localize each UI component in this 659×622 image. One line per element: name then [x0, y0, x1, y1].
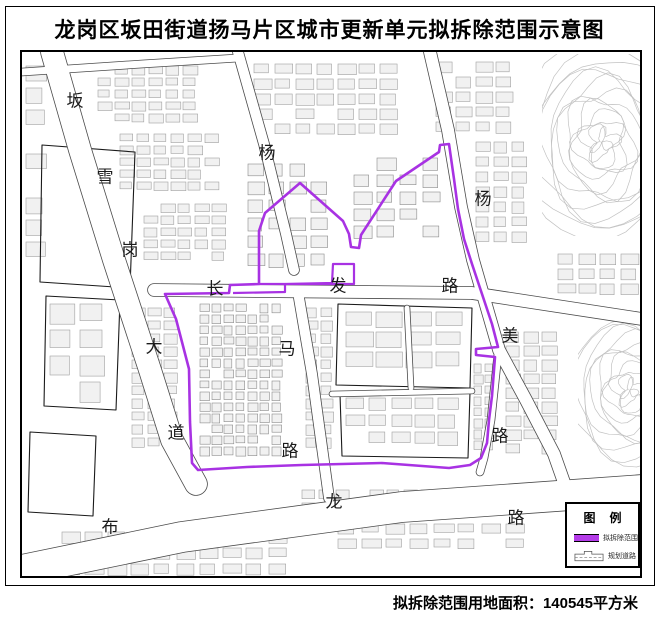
building-footprint	[224, 304, 233, 311]
building-footprint	[269, 548, 286, 557]
building-footprint	[290, 218, 306, 231]
building-footprint	[212, 414, 220, 423]
building-footprint	[512, 232, 526, 243]
building-footprint	[183, 66, 198, 75]
building-footprint	[161, 216, 174, 224]
building-footprint	[542, 346, 557, 355]
building-footprint	[338, 539, 357, 548]
building-footprint	[248, 436, 258, 443]
building-footprint	[177, 564, 194, 575]
building-footprint	[321, 334, 331, 344]
building-footprint	[260, 403, 268, 411]
contour-line	[600, 350, 640, 437]
building-footprint	[224, 392, 232, 400]
building-footprint	[275, 94, 292, 104]
building-footprint	[317, 94, 334, 105]
building-footprint	[200, 370, 210, 378]
building-footprint	[376, 312, 402, 328]
building-footprint	[346, 312, 371, 325]
road-label: 布	[102, 518, 119, 537]
building-block	[26, 66, 47, 257]
building-footprint	[166, 102, 181, 109]
building-footprint	[212, 436, 222, 445]
building-footprint	[248, 164, 264, 176]
building-footprint	[236, 403, 244, 411]
building-footprint	[212, 204, 226, 212]
building-footprint	[558, 254, 572, 264]
building-footprint	[474, 441, 482, 450]
building-footprint	[380, 94, 395, 105]
building-footprint	[171, 182, 186, 191]
building-footprint	[248, 326, 257, 333]
building-block	[346, 312, 462, 368]
building-footprint	[359, 124, 374, 133]
contour-line	[524, 52, 640, 228]
building-footprint	[200, 315, 209, 323]
legend-item-demolition: 拟拆除范围	[574, 533, 638, 543]
building-footprint	[50, 330, 70, 348]
building-footprint	[137, 182, 151, 189]
building-footprint	[248, 254, 265, 266]
building-footprint	[224, 381, 232, 390]
building-footprint	[224, 315, 234, 323]
building-footprint	[296, 109, 314, 119]
building-footprint	[542, 360, 558, 371]
building-footprint	[164, 360, 177, 369]
legend: 图例 拟拆除范围 规划道路	[565, 502, 640, 568]
building-footprint	[269, 564, 286, 574]
building-footprint	[296, 124, 310, 133]
building-footprint	[524, 374, 539, 383]
building-footprint	[223, 548, 241, 557]
building-footprint	[115, 90, 128, 98]
building-footprint	[132, 438, 144, 447]
building-footprint	[496, 122, 511, 133]
building-footprint	[392, 398, 411, 408]
building-footprint	[132, 102, 146, 111]
building-footprint	[120, 182, 131, 189]
building-footprint	[494, 187, 507, 197]
building-footprint	[512, 217, 527, 226]
building-footprint	[200, 348, 209, 356]
building-footprint	[380, 124, 398, 134]
building-footprint	[400, 209, 417, 219]
building-footprint	[338, 79, 354, 89]
building-footprint	[148, 321, 160, 329]
building-footprint	[600, 269, 614, 279]
building-footprint	[178, 240, 190, 249]
building-footprint	[154, 170, 166, 179]
building-footprint	[26, 154, 47, 169]
building-footprint	[80, 356, 105, 376]
building-footprint	[436, 332, 460, 344]
building-footprint	[236, 315, 246, 323]
building-footprint	[248, 359, 258, 366]
building-block	[254, 64, 398, 135]
building-footprint	[178, 252, 190, 260]
building-footprint	[512, 142, 524, 151]
building-footprint	[296, 79, 314, 89]
building-footprint	[26, 220, 42, 236]
building-footprint	[80, 304, 102, 321]
building-footprint	[254, 79, 272, 89]
building-footprint	[248, 392, 257, 400]
parcel-outline	[28, 432, 96, 516]
building-footprint	[212, 447, 222, 455]
building-footprint	[171, 146, 183, 153]
building-footprint	[474, 364, 481, 373]
building-footprint	[205, 158, 219, 166]
road-label: 道	[168, 424, 185, 443]
building-footprint	[400, 192, 416, 205]
building-footprint	[166, 90, 178, 98]
building-footprint	[115, 114, 129, 121]
building-footprint	[236, 304, 246, 311]
building-footprint	[369, 398, 385, 410]
building-footprint	[212, 304, 221, 312]
building-footprint	[248, 315, 256, 323]
building-footprint	[224, 436, 234, 444]
building-footprint	[50, 356, 69, 375]
building-footprint	[600, 254, 616, 265]
contour-line	[574, 325, 641, 463]
building-footprint	[346, 398, 364, 409]
building-footprint	[260, 447, 269, 455]
building-footprint	[296, 94, 314, 105]
building-footprint	[456, 77, 470, 88]
building-footprint	[154, 134, 166, 142]
building-footprint	[260, 425, 269, 434]
building-footprint	[260, 304, 268, 313]
building-footprint	[380, 64, 397, 73]
building-footprint	[380, 109, 397, 120]
building-footprint	[212, 240, 225, 249]
page-title: 龙岗区坂田街道扬马片区城市更新单元拟拆除范围示意图	[0, 14, 659, 44]
building-footprint	[224, 447, 233, 455]
building-footprint	[272, 370, 282, 377]
building-footprint	[154, 158, 169, 165]
building-footprint	[506, 539, 523, 547]
building-footprint	[359, 64, 375, 73]
building-footprint	[456, 107, 472, 117]
building-footprint	[496, 92, 513, 102]
building-footprint	[178, 216, 190, 224]
building-footprint	[132, 386, 144, 395]
building-block	[98, 66, 198, 123]
building-footprint	[236, 447, 246, 456]
building-footprint	[272, 425, 282, 432]
building-footprint	[26, 198, 42, 214]
contour-line	[568, 96, 640, 195]
building-footprint	[415, 432, 434, 443]
building-footprint	[200, 414, 210, 423]
building-footprint	[321, 347, 333, 357]
planned-road-swatch	[574, 550, 604, 562]
building-footprint	[98, 102, 112, 111]
building-footprint	[272, 403, 280, 411]
building-footprint	[474, 375, 483, 384]
building-footprint	[272, 392, 280, 401]
building-footprint	[115, 78, 129, 86]
building-footprint	[137, 158, 151, 166]
building-footprint	[236, 370, 245, 377]
building-footprint	[476, 62, 493, 72]
building-footprint	[415, 415, 434, 427]
building-footprint	[476, 77, 492, 86]
building-footprint	[458, 524, 473, 532]
building-footprint	[359, 109, 377, 119]
building-footprint	[558, 284, 576, 293]
building-footprint	[236, 425, 244, 432]
building-footprint	[438, 415, 455, 428]
building-footprint	[512, 187, 523, 198]
building-footprint	[338, 124, 355, 135]
building-footprint	[224, 414, 233, 422]
building-footprint	[164, 347, 177, 356]
building-footprint	[392, 415, 412, 426]
building-footprint	[144, 228, 157, 237]
building-block	[200, 304, 282, 456]
building-footprint	[272, 326, 282, 334]
building-footprint	[161, 204, 176, 213]
building-footprint	[386, 539, 402, 547]
building-footprint	[438, 432, 458, 446]
building-footprint	[272, 447, 281, 456]
building-footprint	[212, 315, 221, 324]
building-footprint	[248, 370, 257, 379]
building-footprint	[50, 304, 75, 324]
building-footprint	[132, 425, 143, 434]
building-footprint	[438, 398, 458, 409]
building-footprint	[254, 64, 268, 73]
building-footprint	[354, 192, 372, 204]
legend-item-label: 拟拆除范围	[603, 533, 638, 543]
building-footprint	[558, 269, 573, 280]
building-footprint	[148, 438, 159, 446]
road-label: 路	[442, 277, 459, 296]
road-label: 长	[207, 280, 224, 299]
building-footprint	[269, 254, 283, 268]
building-footprint	[362, 539, 382, 548]
building-footprint	[161, 228, 176, 236]
map-canvas: 坂雪岗大道杨长发路马路杨美路布龙路	[20, 50, 642, 578]
building-footprint	[200, 304, 210, 311]
building-footprint	[476, 157, 489, 166]
building-footprint	[131, 564, 148, 575]
building-footprint	[224, 370, 234, 378]
building-footprint	[542, 402, 557, 413]
building-footprint	[542, 374, 556, 384]
building-footprint	[434, 524, 454, 532]
building-footprint	[474, 430, 482, 439]
building-footprint	[161, 240, 175, 247]
building-footprint	[149, 78, 162, 86]
map-layers: 坂雪岗大道杨长发路马路杨美路布龙路	[22, 52, 640, 575]
building-footprint	[456, 122, 469, 131]
building-footprint	[164, 334, 177, 344]
building-footprint	[311, 254, 324, 265]
building-footprint	[200, 392, 209, 401]
building-footprint	[260, 326, 268, 333]
building-footprint	[600, 284, 614, 295]
building-footprint	[494, 232, 506, 242]
building-footprint	[321, 399, 333, 408]
page: { "title": "龙岗区坂田街道扬马片区城市更新单元拟拆除范围示意图", …	[0, 0, 659, 622]
building-footprint	[494, 217, 505, 227]
building-footprint	[302, 490, 315, 499]
building-footprint	[359, 79, 377, 89]
building-footprint	[317, 124, 334, 134]
building-footprint	[354, 209, 371, 221]
road-label: 坂	[67, 92, 84, 111]
road-label: 龙	[326, 493, 343, 512]
building-footprint	[80, 330, 102, 348]
building-footprint	[275, 124, 290, 134]
building-footprint	[137, 146, 150, 154]
building-footprint	[195, 216, 209, 224]
demolition-boundary-swatch	[574, 534, 599, 542]
legend-item-planned-road: 规划道路	[574, 550, 638, 562]
building-footprint	[275, 64, 293, 73]
building-footprint	[272, 304, 280, 313]
road-label: 路	[508, 509, 525, 528]
building-footprint	[148, 308, 161, 316]
building-footprint	[120, 146, 133, 155]
building-footprint	[236, 414, 244, 422]
building-footprint	[260, 315, 268, 322]
building-footprint	[195, 240, 208, 249]
building-footprint	[376, 352, 402, 367]
building-footprint	[290, 164, 305, 176]
building-footprint	[506, 402, 519, 411]
contour-patch	[524, 52, 640, 241]
building-footprint	[354, 175, 369, 186]
building-footprint	[506, 416, 521, 426]
building-footprint	[476, 142, 490, 151]
building-footprint	[188, 146, 203, 155]
building-footprint	[212, 337, 221, 345]
building-footprint	[476, 122, 489, 131]
building-footprint	[98, 90, 109, 97]
building-footprint	[120, 170, 135, 177]
building-footprint	[436, 352, 459, 366]
building-footprint	[178, 228, 192, 236]
building-footprint	[200, 337, 208, 344]
building-footprint	[338, 64, 356, 75]
building-footprint	[579, 254, 596, 265]
building-footprint	[272, 359, 282, 366]
building-footprint	[248, 200, 262, 213]
building-footprint	[144, 252, 158, 260]
building-footprint	[321, 321, 333, 331]
building-footprint	[26, 88, 42, 103]
road-label: 雪	[97, 168, 114, 187]
building-footprint	[512, 202, 524, 213]
building-footprint	[224, 348, 232, 356]
building-footprint	[524, 346, 540, 356]
building-footprint	[496, 77, 511, 87]
building-footprint	[476, 217, 488, 227]
building-footprint	[183, 102, 195, 110]
building-footprint	[423, 175, 438, 188]
building-footprint	[144, 240, 158, 248]
building-footprint	[311, 236, 328, 247]
building-footprint	[224, 326, 232, 335]
building-footprint	[321, 360, 330, 368]
building-footprint	[120, 158, 135, 165]
building-footprint	[200, 381, 209, 388]
building-footprint	[542, 388, 555, 399]
road-label: 路	[282, 442, 299, 461]
building-footprint	[120, 134, 133, 141]
building-footprint	[212, 392, 220, 400]
building-footprint	[212, 326, 222, 333]
building-footprint	[346, 332, 374, 347]
building-footprint	[260, 348, 269, 355]
building-footprint	[149, 90, 160, 98]
area-caption: 拟拆除范围用地面积：140545平方米	[393, 592, 638, 613]
building-footprint	[415, 398, 433, 409]
building-footprint	[260, 392, 269, 400]
building-footprint	[212, 228, 226, 236]
building-footprint	[248, 403, 258, 412]
building-footprint	[346, 352, 373, 366]
building-footprint	[132, 114, 144, 122]
building-footprint	[200, 564, 215, 574]
building-block	[144, 204, 226, 260]
building-footprint	[205, 134, 218, 143]
building-footprint	[423, 192, 440, 202]
building-footprint	[542, 332, 557, 341]
building-footprint	[272, 381, 280, 390]
road-label: 岗	[122, 241, 139, 260]
building-footprint	[346, 415, 365, 426]
building-footprint	[369, 415, 386, 425]
building-footprint	[178, 204, 189, 212]
building-footprint	[494, 157, 509, 166]
building-footprint	[171, 134, 183, 143]
building-footprint	[248, 337, 257, 346]
building-footprint	[154, 564, 169, 573]
building-footprint	[200, 326, 208, 334]
building-footprint	[248, 414, 258, 422]
legend-title: 图例	[567, 509, 638, 526]
building-footprint	[311, 200, 326, 212]
building-footprint	[98, 78, 110, 86]
building-footprint	[224, 425, 233, 433]
building-footprint	[236, 359, 244, 368]
building-footprint	[166, 66, 179, 75]
road-label: 发	[330, 277, 347, 296]
building-footprint	[166, 114, 180, 122]
building-footprint	[260, 414, 269, 423]
building-footprint	[183, 90, 194, 98]
building-footprint	[476, 92, 493, 103]
building-footprint	[621, 284, 638, 295]
building-footprint	[212, 216, 226, 224]
building-footprint	[436, 312, 462, 326]
building-footprint	[311, 182, 327, 194]
building-footprint	[377, 175, 393, 187]
building-footprint	[149, 114, 163, 123]
building-footprint	[224, 403, 233, 411]
building-footprint	[377, 226, 394, 237]
building-footprint	[236, 326, 245, 335]
building-footprint	[212, 425, 222, 433]
building-footprint	[149, 102, 162, 110]
building-footprint	[154, 182, 168, 191]
building-footprint	[200, 447, 210, 456]
